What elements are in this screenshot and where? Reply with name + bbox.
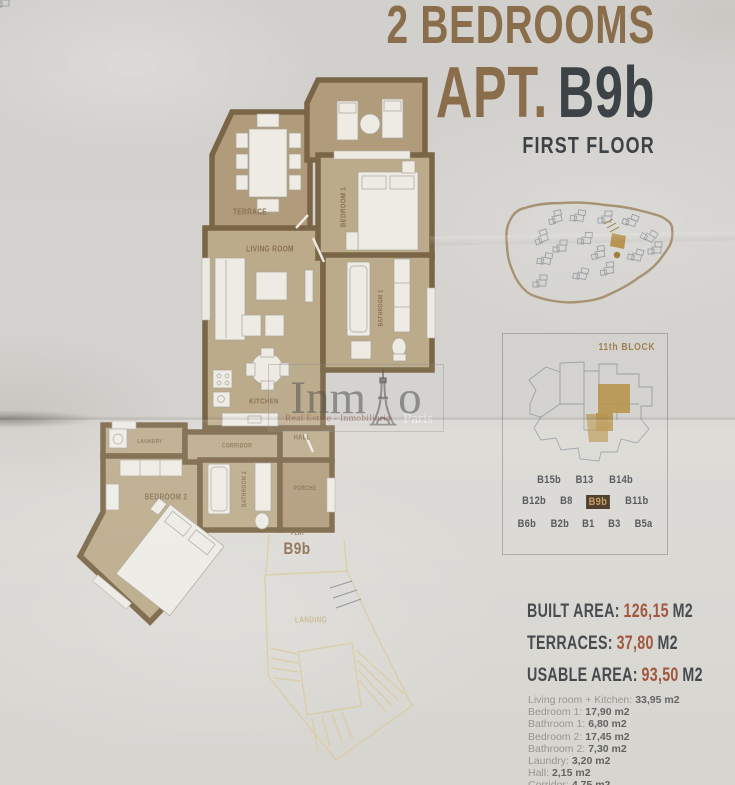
apartment-code-highlighted: B9b [586,495,610,509]
room-label-bathroom1: BATHROOM 1 [378,289,385,326]
room-value: 17,45 m2 [585,731,629,743]
room-label-laundry: LAUNDRY [137,439,162,445]
apartment-code: B5a [634,518,652,530]
site-highlight [610,233,626,249]
apartment-plan-sheet: 2 BEDROOMS APT.B9b FIRST FLOOR TERRACE L… [0,0,735,785]
room-value: 2,15 m2 [552,767,591,779]
apartment-code: B8 [560,495,572,509]
room-name: Living room + Kitchen: [528,694,632,706]
room-label-bathroom2: BATHROOM 2 [242,471,248,507]
room-area-row: Corridor:4,75 m2 [528,779,680,785]
room-area-list: Living room + Kitchen:33,95 m2 Bedroom 1… [528,694,680,785]
apt-code: B9b [558,53,655,133]
room-label-bedroom1: BEDROOM 1 [339,187,348,227]
room-name: Bathroom 1: [528,718,585,730]
room-name: Bedroom 1: [528,706,582,718]
laundry-fixtures [109,429,127,448]
apartment-code: B11b [625,495,648,509]
apartment-code: B2b [550,518,568,530]
apartment-row: B12b B8 B9b B11b [520,495,651,509]
room-label-porche: PORCHE [293,486,316,492]
apartment-code: B1 [583,518,595,530]
room-label-living-room: LIVING ROOM [246,245,294,254]
apartment-code: B6b [518,518,536,530]
usable-area-line: USABLE AREA:93,50M2 [527,665,703,687]
area-value: 37,80 [617,633,654,654]
apartment-code: B14b [609,474,633,486]
room-name: Laundry: [528,755,569,767]
inmo-paris-watermark: Inm o Real Estate - Inmobiliaria Paris [268,364,444,432]
room-value: 33,95 m2 [635,694,679,706]
area-unit: M2 [682,665,702,686]
room-area-row: Bedroom 2:17,45 m2 [528,731,680,743]
room-label-terrace: TERRACE [233,208,267,217]
area-unit: M2 [657,633,677,654]
room-value: 3,20 m2 [572,755,611,767]
room-label-hall: HALL [294,435,311,442]
block-panel: 11th BLOCK B15b B13 B14b B12b B8 B9b B11… [502,333,668,555]
room-value: 6,80 m2 [588,718,627,730]
window [427,288,435,338]
room-label-corridor: CORRIDOR [222,443,252,450]
page-title: 2 BEDROOMS [386,0,655,56]
area-value: 93,50 [641,665,678,686]
watermark-city: Paris [403,411,433,428]
room-area-row: Living room + Kitchen:33,95 m2 [528,694,680,706]
room-value: 4,75 m2 [572,779,611,785]
room-area-row: Bathroom 1:6,80 m2 [528,718,680,730]
window [334,151,410,159]
apartment-row: B6b B2b B1 B3 B5a [516,518,654,530]
room-name: Bedroom 2: [528,731,582,743]
flat-code: B9b [284,539,311,559]
room-area-row: Hall:2,15 m2 [528,767,680,779]
apartment-code: B3 [608,518,620,530]
window [327,478,335,512]
flat-label: FLAT [291,531,305,537]
room-area-row: Bedroom 1:17,90 m2 [528,706,680,718]
room-value: 17,90 m2 [585,706,629,718]
apartment-code-title: APT.B9b [436,52,655,134]
room-label-bedroom2: BEDROOM 2 [145,493,188,502]
area-value: 126,15 [624,601,669,622]
apartment-grid: B15b B13 B14b B12b B8 B9b B11b B6b B2b B… [503,474,667,530]
room-area-row: Bathroom 2:7,30 m2 [528,743,680,755]
hall-room [280,428,332,462]
block-panel-title: 11th BLOCK [598,341,655,353]
window [112,421,136,429]
porche-room [280,460,332,530]
area-label: TERRACES: [527,633,613,654]
apt-prefix: APT. [436,53,548,133]
landing-stairs [265,534,412,760]
terraces-area-line: TERRACES:37,80M2 [527,633,703,655]
room-name: Hall: [528,767,549,779]
apartment-row: B15b B13 B14b [535,474,634,486]
room-value: 7,30 m2 [588,743,627,755]
room-name: Bathroom 2: [528,743,585,755]
area-label: USABLE AREA: [527,665,638,686]
built-area-line: BUILT AREA:126,15M2 [527,601,703,623]
area-summary: BUILT AREA:126,15M2 TERRACES:37,80M2 USA… [527,601,735,697]
floor-subtitle: FIRST FLOOR [523,132,655,159]
area-unit: M2 [673,601,693,622]
watermark-tagline: Real Estate - Inmobiliaria [285,414,391,424]
window [202,258,210,320]
apartment-code: B12b [522,495,546,509]
room-name: Corridor: [528,779,569,785]
apartment-code: B15b [537,474,561,486]
room-area-row: Laundry:3,20 m2 [528,755,680,767]
area-label: BUILT AREA: [527,601,620,622]
room-label-landing: LANDING [295,616,327,625]
apartment-code: B13 [576,474,594,486]
